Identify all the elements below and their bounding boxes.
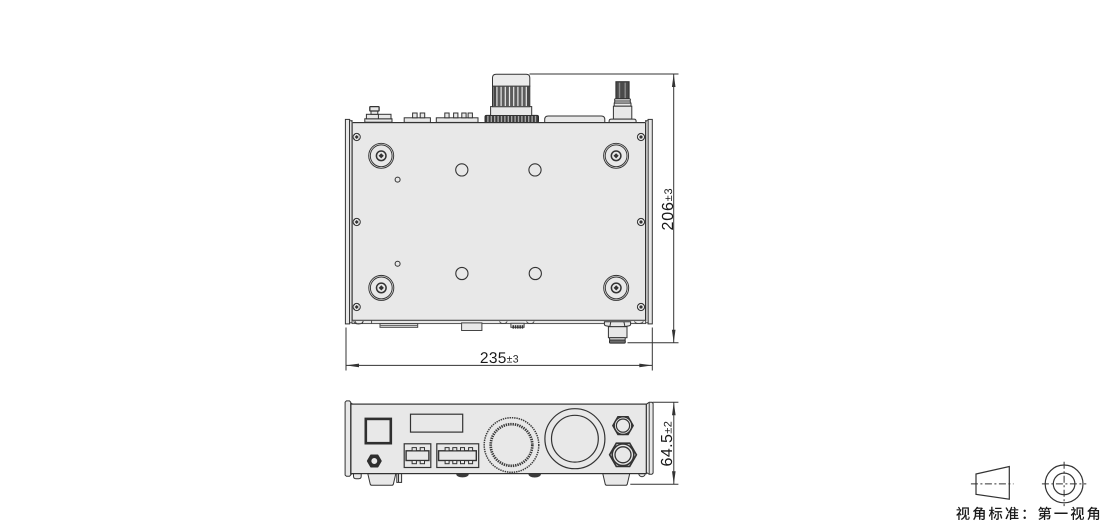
svg-text:206±3: 206±3: [660, 188, 677, 231]
svg-text:64.5±2: 64.5±2: [659, 421, 676, 467]
svg-text:235±3: 235±3: [480, 350, 519, 367]
